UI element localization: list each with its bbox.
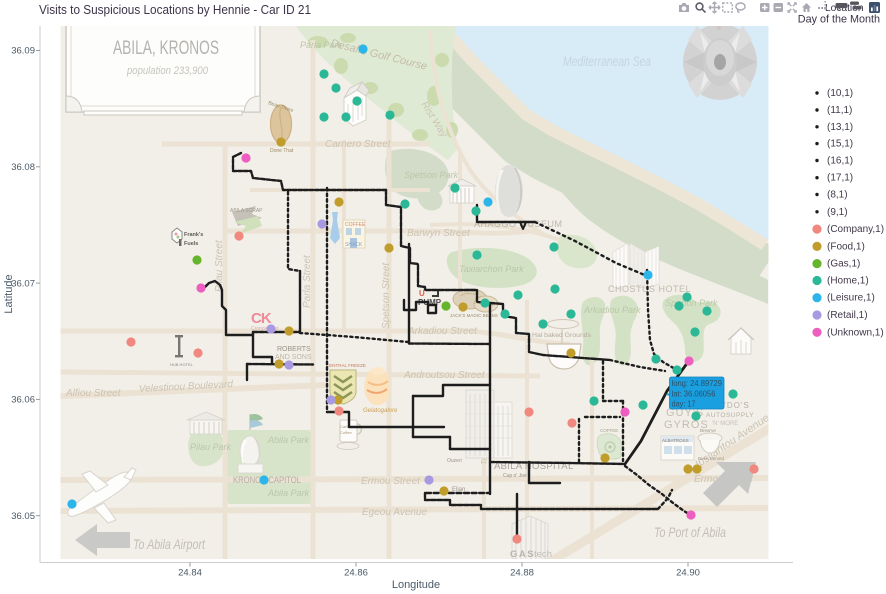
- svg-text:Day of the Month: Day of the Month: [798, 14, 880, 26]
- svg-text:Coffee: Coffee: [340, 430, 352, 435]
- svg-text:Egeou Avenue: Egeou Avenue: [362, 507, 427, 518]
- svg-text:Pilau Park: Pilau Park: [190, 442, 232, 452]
- svg-text:Cup o' Joe: Cup o' Joe: [503, 473, 527, 479]
- svg-text:Fuels: Fuels: [184, 241, 198, 247]
- svg-text:(17,1): (17,1): [827, 173, 853, 184]
- svg-text:24.88: 24.88: [510, 568, 534, 579]
- svg-text:(Gas,1): (Gas,1): [827, 259, 860, 270]
- svg-text:Spetson Park: Spetson Park: [404, 170, 459, 180]
- svg-text:ALBATROSS: ALBATROSS: [662, 438, 689, 443]
- svg-text:Sparton Park: Sparton Park: [665, 298, 718, 308]
- svg-text:day: 17: day: 17: [672, 399, 696, 409]
- svg-text:(13,1): (13,1): [827, 122, 853, 133]
- svg-text:CHOSTUS HOTEL: CHOSTUS HOTEL: [608, 284, 691, 294]
- svg-text:COFFEE: COFFEE: [345, 222, 366, 228]
- svg-text:SHACK: SHACK: [345, 242, 363, 248]
- svg-text:Taxiarchon Park: Taxiarchon Park: [459, 264, 524, 274]
- svg-text:Latitude: Latitude: [3, 274, 15, 313]
- svg-text:(Retail,1): (Retail,1): [827, 310, 868, 321]
- svg-text:Abila Park: Abila Park: [267, 488, 310, 498]
- svg-text:ROBERTS: ROBERTS: [277, 346, 311, 353]
- svg-text:Arkadiou Park: Arkadiou Park: [583, 305, 641, 315]
- svg-text:24.90: 24.90: [676, 568, 700, 579]
- svg-text:(10,1): (10,1): [827, 88, 853, 99]
- svg-text:36.06: 36.06: [11, 395, 35, 406]
- svg-text:long: 24.89729: long: 24.89729: [672, 378, 723, 388]
- svg-text:(Unknown,1): (Unknown,1): [827, 327, 884, 338]
- svg-text:(9,1): (9,1): [827, 207, 848, 218]
- svg-text:Hal baked Grounds: Hal baked Grounds: [532, 332, 592, 339]
- svg-text:Barwyn Street: Barwyn Street: [407, 228, 471, 239]
- svg-text:To Port of Abila: To Port of Abila: [654, 524, 726, 540]
- svg-text:Spetson Street: Spetson Street: [381, 262, 392, 329]
- svg-text:(Home,1): (Home,1): [827, 276, 869, 287]
- svg-text:U: U: [419, 289, 425, 298]
- svg-text:Ouzeri: Ouzeri: [447, 458, 462, 464]
- svg-text:AUTOSUPPLY: AUTOSUPPLY: [706, 412, 754, 419]
- svg-text:tech: tech: [534, 549, 552, 560]
- svg-text:GAS: GAS: [510, 549, 535, 560]
- svg-text:ABILA SCRAP: ABILA SCRAP: [230, 208, 263, 214]
- svg-text:Frank's: Frank's: [184, 232, 203, 238]
- svg-text:Alfiou Street: Alfiou Street: [65, 388, 122, 399]
- svg-text:Been Served: Been Served: [698, 456, 725, 461]
- svg-text:CK: CK: [251, 310, 272, 327]
- svg-text:(11,1): (11,1): [827, 105, 852, 116]
- svg-text:(Food,1): (Food,1): [827, 241, 865, 252]
- svg-text:COFFEE: COFFEE: [600, 428, 618, 433]
- svg-text:36.05: 36.05: [11, 511, 35, 522]
- svg-text:HUB HOTEL: HUB HOTEL: [170, 362, 194, 367]
- svg-text:Abila Park: Abila Park: [267, 435, 310, 445]
- svg-text:lat: 36.06056: lat: 36.06056: [672, 389, 716, 399]
- svg-text:Arkadiou Street: Arkadiou Street: [407, 326, 478, 337]
- svg-text:Brew've: Brew've: [700, 428, 716, 433]
- svg-text:To Abila Airport: To Abila Airport: [133, 536, 206, 552]
- svg-text:Parla Street: Parla Street: [302, 254, 313, 308]
- svg-text:Mediterranean Sea: Mediterranean Sea: [563, 53, 651, 69]
- svg-text:(8,1): (8,1): [827, 190, 848, 201]
- svg-text:Visits to Suspicious Locations: Visits to Suspicious Locations by Hennie…: [39, 2, 311, 17]
- svg-text:ABILA, KRONOS: ABILA, KRONOS: [113, 38, 219, 59]
- svg-text:AHAGGO MUSEUM: AHAGGO MUSEUM: [474, 219, 563, 229]
- svg-text:(15,1): (15,1): [827, 139, 853, 150]
- svg-text:24.84: 24.84: [178, 568, 202, 579]
- svg-text:N: N: [717, 26, 721, 32]
- svg-text:population 233,900: population 233,900: [126, 65, 209, 77]
- svg-text:CENTRAL FREEZE: CENTRAL FREEZE: [326, 363, 366, 368]
- svg-text:Done That: Done That: [270, 148, 294, 154]
- svg-text:Androutsou Street: Androutsou Street: [403, 370, 486, 381]
- svg-text:Gelatogalore: Gelatogalore: [363, 408, 398, 414]
- svg-text:'N' MORE: 'N' MORE: [712, 421, 738, 427]
- svg-text:36.09: 36.09: [11, 46, 35, 57]
- svg-text:Carnero Street: Carnero Street: [325, 139, 392, 150]
- svg-text:24.86: 24.86: [344, 568, 368, 579]
- svg-text:Ermou Street: Ermou Street: [361, 476, 421, 487]
- svg-text:Longitude: Longitude: [392, 579, 440, 591]
- svg-text:36.08: 36.08: [11, 162, 35, 173]
- svg-text:(16,1): (16,1): [827, 156, 853, 167]
- svg-text:(Leisure,1): (Leisure,1): [827, 293, 875, 304]
- svg-text:(Company,1): (Company,1): [827, 224, 884, 235]
